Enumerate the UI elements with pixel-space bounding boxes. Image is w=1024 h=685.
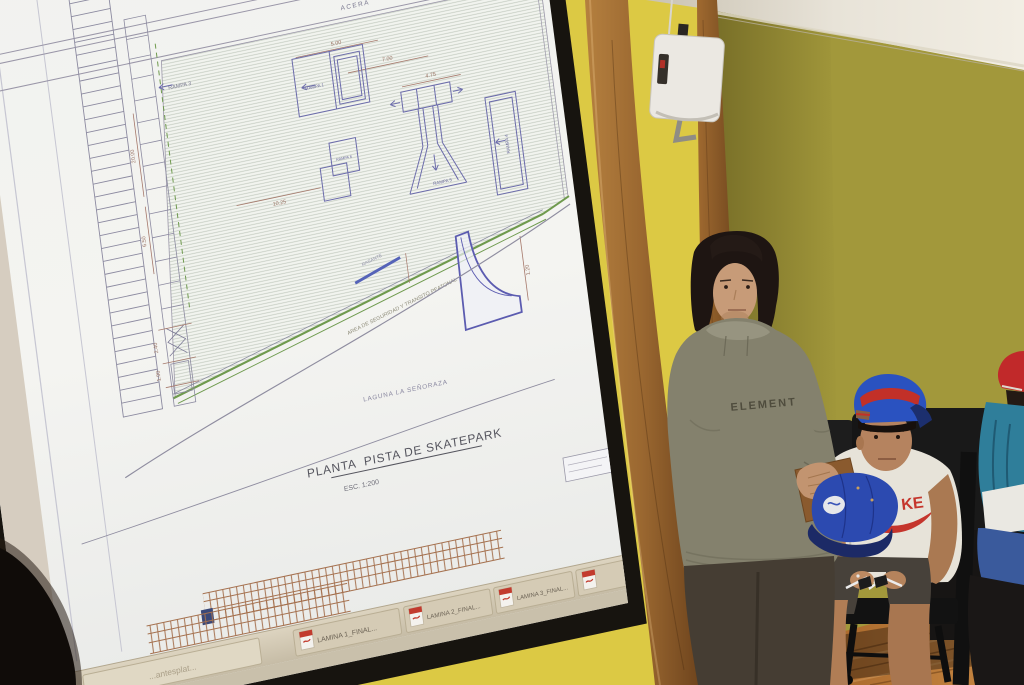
pdf-icon	[499, 587, 514, 608]
meeting-room-photo: ACERA	[0, 0, 1024, 685]
paper-sheet	[982, 484, 1024, 536]
pdf-icon	[409, 606, 424, 627]
pdf-icon	[582, 569, 597, 590]
jeans	[977, 528, 1024, 586]
shirt-logo-text: KE	[900, 494, 924, 514]
scene: ACERA	[0, 0, 1024, 685]
ring	[856, 574, 859, 577]
pdf-icon	[299, 630, 314, 651]
attendee-leg	[888, 604, 932, 685]
held-cap	[808, 473, 898, 558]
projection-screen: ACERA	[0, 0, 649, 685]
